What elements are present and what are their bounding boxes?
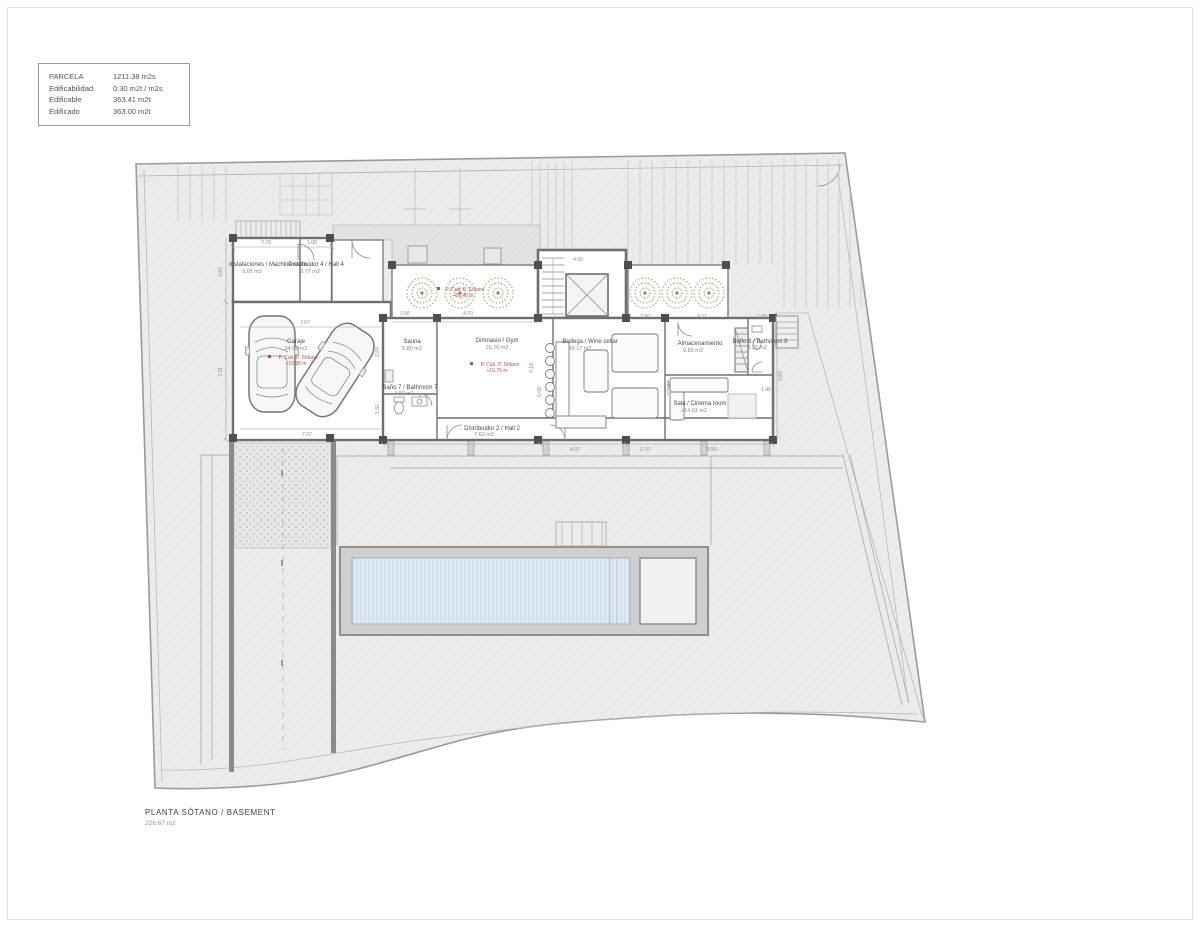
dim-text: 1.48 [761,387,771,393]
dim-text: 5.08 [537,387,543,397]
plan-title: PLANTA SÓTANO / BASEMENT [145,808,276,817]
label-bath8-area: 4.20 m2 [747,345,767,351]
label-bodega-name: Bodega / Wine cellar [562,339,617,345]
label-storage-area: 9.80 m2 [683,348,703,354]
dim-text: 2.70 [640,447,650,453]
label-bath7-area: 4.80 m2 [394,391,414,397]
label-patio-note2: +26.40 m [453,293,474,299]
label-bodega-area: 49.17 m2 [569,346,592,352]
elevator [566,274,608,316]
pool-deck-square [640,558,696,624]
plan-sheet: PARCELA 1211.38 m2s Edificabilidad 0.30 … [0,0,1200,927]
dim-text: 1.09 [757,314,767,320]
label-storage-name: Almacenamiento [678,341,723,347]
storage-ladder [735,328,748,372]
label-cinema-name: Sala / Cinema room [673,401,726,407]
dim-text: 9.11 [697,314,707,320]
label-hall4-area: 3.77 m2 [300,269,320,275]
sauna-bench [385,370,393,382]
dim-text: 3.83 [778,371,784,381]
driveway-ramp-paving [234,443,331,548]
skylight [408,246,427,263]
driveway-wall-left [229,440,234,772]
label-hall2-area: 7.62 m2 [474,432,494,438]
label-sauna-name: Sauna [403,339,421,345]
dim-text: 1.08 [307,240,317,246]
label-gym-note2: +15.76 m [487,368,508,374]
dim-text: 4.97 [570,447,580,453]
label-hall4-name: Distribuidor 4 / Hall 4 [288,262,344,268]
dim-text: 4.00 [573,257,583,263]
label-sauna-area: 5.80 m2 [402,346,422,352]
pool-water [352,558,630,624]
plan-area: 226.67 m2 [145,820,276,827]
entry-porch [332,240,383,302]
dim-text: 2.81 [218,267,224,277]
label-garage-name: Garaje [287,339,306,345]
dim-text: 7.67 [302,432,312,438]
red-bullet-icon [437,287,440,290]
dim-text: 4.10 [529,363,535,373]
dim-text: 1.06 [400,311,410,317]
pool-steps [556,522,606,546]
label-garage-area: 34.96 m2 [285,346,308,352]
dim-text: 5.50 [707,447,717,453]
dim-text: 2.84 [375,347,381,357]
dim-text: 7.67 [300,320,310,326]
pool [340,547,708,635]
dim-text: 7.80 [640,314,650,320]
dim-text: 4.70 [463,311,473,317]
label-machine-room-area: 9.01 m2 [242,269,262,275]
red-bullet-icon [470,362,473,365]
label-garage-note2: +15.88 m [286,361,307,367]
label-gym-name: Gimnasio / Gym [475,338,518,344]
dim-text: 1.52 [375,404,381,414]
red-bullet-icon [268,355,271,358]
title-block: PLANTA SÓTANO / BASEMENT 226.67 m2 [145,808,276,827]
floor-plan-drawing: Instalaciones / Machine room 9.01 m2 Dis… [0,0,1200,927]
skylight [484,248,501,264]
dim-text: 7.11 [218,367,224,377]
dim-text: 7.78 [261,240,271,246]
driveway-wall-right [331,440,336,753]
label-cinema-area: +14.01 m2 [681,408,707,414]
label-gym-area: 15.76 m2 [486,345,509,351]
